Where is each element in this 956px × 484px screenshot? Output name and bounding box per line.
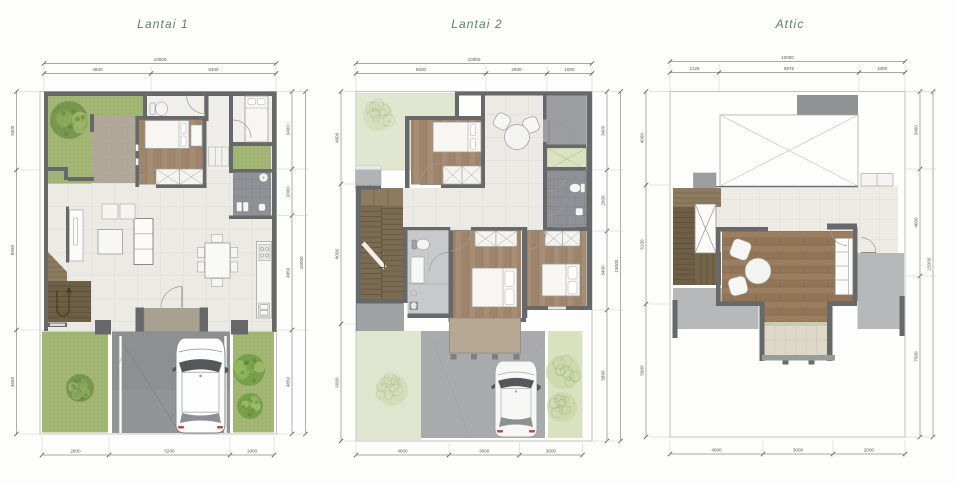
svg-text:5400: 5400 <box>208 67 219 72</box>
svg-text:3400: 3400 <box>601 125 606 136</box>
svg-text:4650: 4650 <box>10 376 15 387</box>
svg-text:1900: 1900 <box>247 449 258 454</box>
svg-text:4950: 4950 <box>286 267 291 278</box>
svg-text:4600: 4600 <box>92 67 103 72</box>
svg-text:5200: 5200 <box>164 449 175 454</box>
svg-text:2600: 2600 <box>601 195 606 206</box>
svg-text:10000: 10000 <box>781 55 794 60</box>
svg-text:3000: 3000 <box>479 449 490 454</box>
svg-text:5000: 5000 <box>335 377 340 388</box>
svg-text:2000: 2000 <box>286 187 291 198</box>
svg-text:6950: 6950 <box>10 244 15 255</box>
svg-text:4850: 4850 <box>286 376 291 387</box>
svg-text:Attic: Attic <box>775 17 805 31</box>
svg-text:5975: 5975 <box>784 66 795 71</box>
svg-text:3400: 3400 <box>914 125 919 136</box>
svg-text:2900: 2900 <box>70 449 81 454</box>
svg-text:4000: 4000 <box>335 132 340 143</box>
svg-text:6000: 6000 <box>335 248 340 259</box>
svg-text:15000: 15000 <box>614 259 619 272</box>
svg-text:Lantai 2: Lantai 2 <box>451 17 503 31</box>
svg-text:4000: 4000 <box>711 448 722 453</box>
svg-text:2000: 2000 <box>864 448 875 453</box>
svg-text:7000: 7000 <box>914 351 919 362</box>
svg-text:10000: 10000 <box>468 57 481 62</box>
svg-text:10000: 10000 <box>154 57 167 62</box>
svg-text:4000: 4000 <box>397 449 408 454</box>
svg-text:15000: 15000 <box>927 257 932 270</box>
svg-text:4600: 4600 <box>914 217 919 228</box>
svg-text:Lantai 1: Lantai 1 <box>137 17 189 31</box>
svg-text:15000: 15000 <box>299 256 304 269</box>
svg-text:4000: 4000 <box>640 133 645 144</box>
svg-text:1900: 1900 <box>564 67 575 72</box>
svg-text:5900: 5900 <box>640 365 645 376</box>
svg-text:3400: 3400 <box>601 265 606 276</box>
svg-text:5500: 5500 <box>416 67 427 72</box>
svg-text:2600: 2600 <box>511 67 522 72</box>
svg-text:3000: 3000 <box>793 448 804 453</box>
svg-text:5800: 5800 <box>601 370 606 381</box>
svg-text:3400: 3400 <box>286 125 291 136</box>
svg-text:5100: 5100 <box>640 239 645 250</box>
svg-text:2125: 2125 <box>689 66 700 71</box>
svg-text:3400: 3400 <box>10 125 15 136</box>
svg-text:1900: 1900 <box>877 66 888 71</box>
svg-text:3000: 3000 <box>546 449 557 454</box>
